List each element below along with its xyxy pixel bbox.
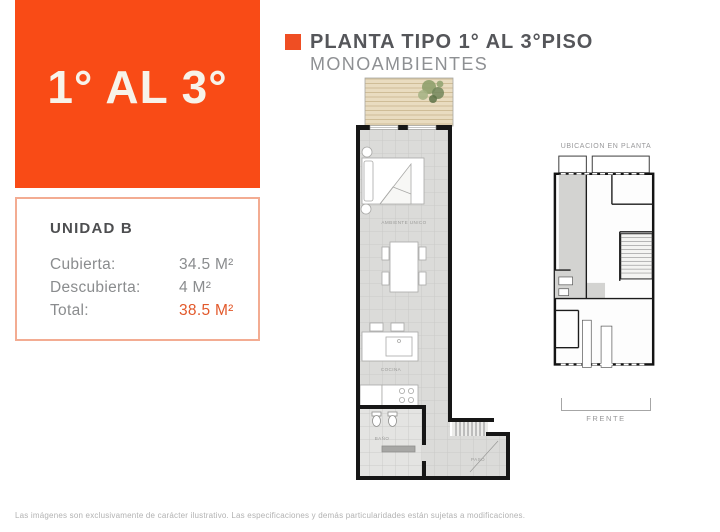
label-cocina: COCINA [381, 367, 402, 372]
hero-floor-label: 1° AL 3° [47, 60, 227, 114]
area-value-total: 38.5 M² [179, 299, 234, 322]
stairs [452, 422, 488, 436]
main-floor-plan: AMBIENTE UNICO COCINA BAÑO PASO [330, 75, 515, 500]
area-value: 34.5 M² [179, 253, 234, 276]
frente-label: FRENTE [549, 414, 663, 423]
hero-floor-badge: 1° AL 3° [15, 0, 260, 188]
table-row: Cubierta: 34.5 M² [50, 253, 258, 276]
area-label: Cubierta: [50, 253, 179, 276]
disclaimer-text: Las imágenes son exclusivamente de carác… [15, 511, 525, 520]
area-value: 4 M² [179, 276, 211, 299]
bullet-square-icon [285, 34, 301, 50]
unit-info-card: UNIDAD B Cubierta: 34.5 M² Descubierta: … [15, 197, 260, 341]
header-text: PLANTA TIPO 1° AL 3°PISO MONOAMBIENTES [310, 31, 593, 74]
table-row: Total: 38.5 M² [50, 299, 258, 322]
page-header: PLANTA TIPO 1° AL 3°PISO MONOAMBIENTES [285, 31, 593, 74]
location-plan-drawing [549, 153, 663, 397]
label-bano: BAÑO [375, 435, 390, 441]
table-row: Descubierta: 4 M² [50, 276, 258, 299]
unit-area-table: Cubierta: 34.5 M² Descubierta: 4 M² Tota… [50, 253, 258, 322]
unit-name: UNIDAD B [50, 220, 258, 237]
label-ambiente-unico: AMBIENTE UNICO [381, 220, 426, 225]
mini-balconies [559, 156, 649, 173]
frente-bracket [561, 398, 651, 411]
area-label: Descubierta: [50, 276, 179, 299]
area-label: Total: [50, 299, 179, 322]
label-paso: PASO [471, 457, 485, 462]
floor-plan-drawing: AMBIENTE UNICO COCINA BAÑO PASO [330, 75, 515, 495]
page-title: PLANTA TIPO 1° AL 3°PISO [310, 31, 593, 53]
location-plan-title: UBICACION EN PLANTA [549, 143, 663, 150]
location-plan: UBICACION EN PLANTA [549, 143, 663, 423]
page-subtitle: MONOAMBIENTES [310, 54, 593, 74]
mini-stairs [621, 234, 652, 279]
